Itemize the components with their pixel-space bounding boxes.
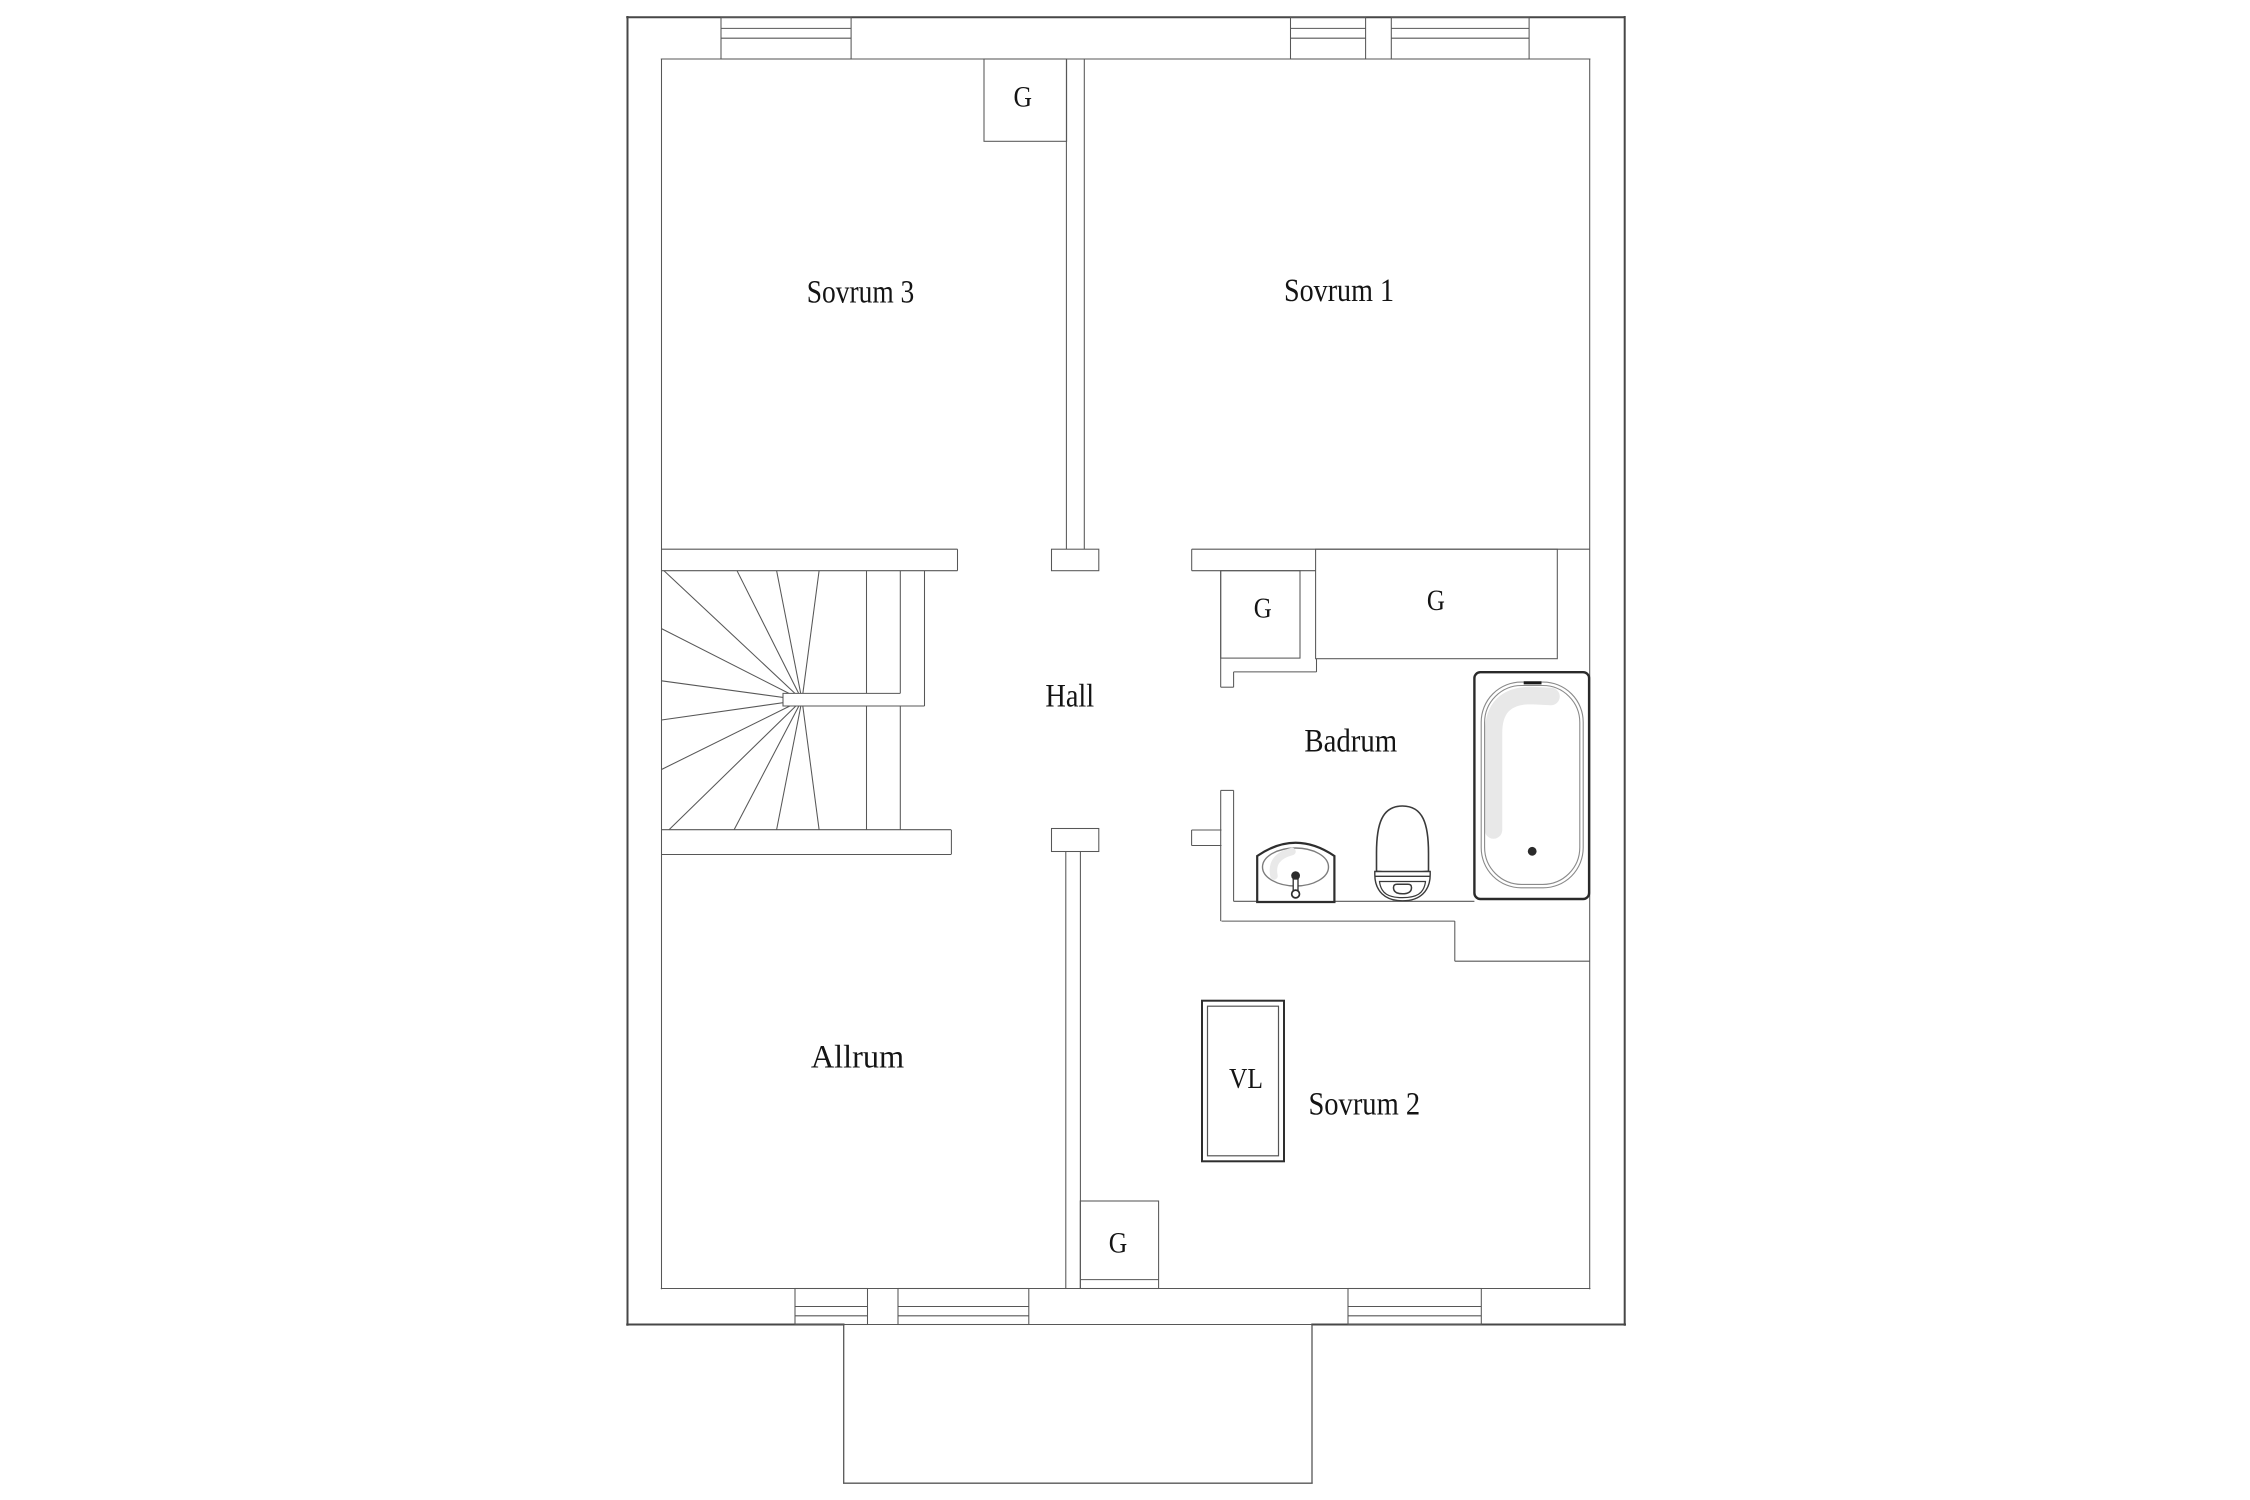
svg-text:G: G bbox=[1427, 585, 1445, 617]
svg-text:G: G bbox=[1109, 1226, 1128, 1259]
svg-text:G: G bbox=[1254, 593, 1272, 625]
svg-text:Sovrum 3: Sovrum 3 bbox=[807, 274, 915, 310]
svg-text:Sovrum 1: Sovrum 1 bbox=[1284, 273, 1394, 309]
svg-text:Sovrum 2: Sovrum 2 bbox=[1308, 1087, 1420, 1123]
svg-text:Badrum: Badrum bbox=[1304, 723, 1397, 759]
svg-text:Hall: Hall bbox=[1045, 679, 1094, 715]
svg-text:G: G bbox=[1013, 80, 1032, 113]
svg-text:VL: VL bbox=[1229, 1063, 1263, 1095]
svg-text:Allrum: Allrum bbox=[811, 1040, 905, 1076]
